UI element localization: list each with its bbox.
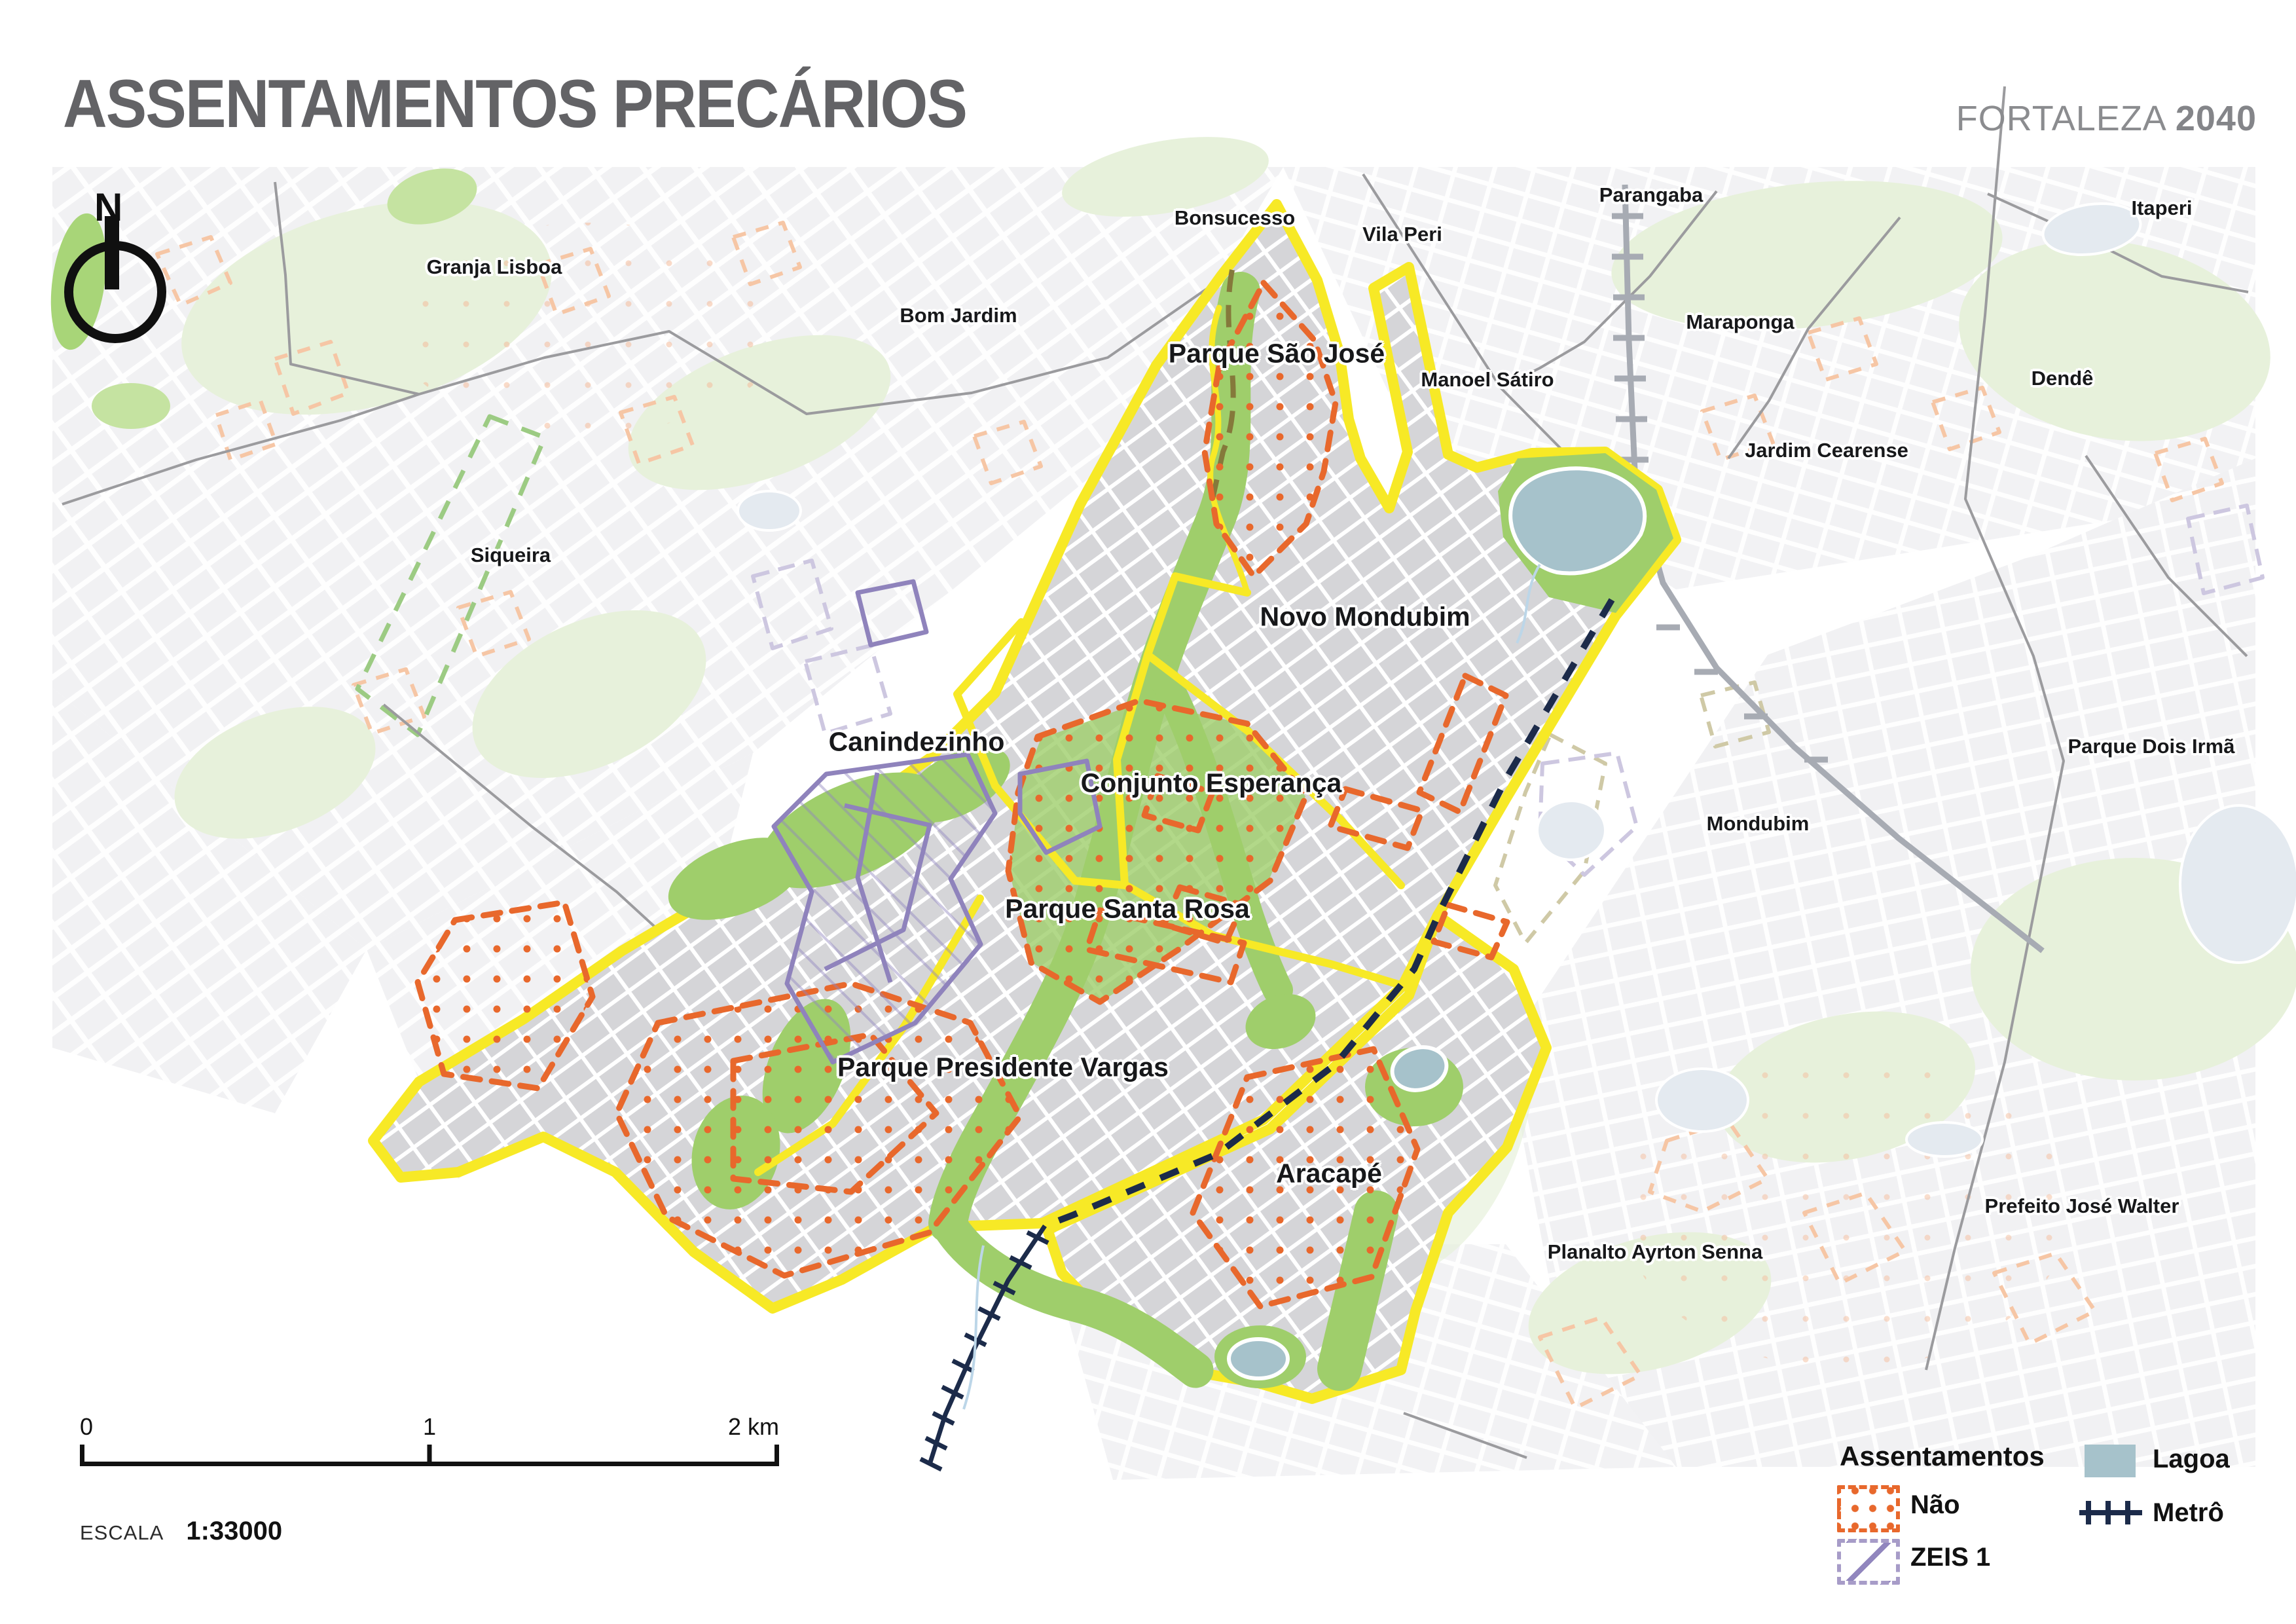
scale-bar-line (80, 1462, 779, 1466)
map-label-vila-peri: Vila Peri (1362, 223, 1442, 246)
page: { "header": { "title": "ASSENTAMENTOS PR… (0, 0, 2296, 1624)
legend-label-lagoa: Lagoa (2153, 1445, 2230, 1474)
map-label-granja-lisboa: Granja Lisboa (427, 255, 562, 279)
map-label-canindezinho: Canindezinho (829, 727, 1005, 758)
map-label-dend-: Dendê (2032, 367, 2094, 390)
scale-tick-label: 1 (423, 1413, 436, 1441)
map-label-prefeito-jos-walter: Prefeito José Walter (1985, 1194, 2179, 1218)
map-label-parque-s-o-jos-: Parque São José (1169, 339, 1385, 369)
page-title: ASSENTAMENTOS PRECÁRIOS (63, 65, 966, 143)
map-label-mondubim: Mondubim (1707, 812, 1810, 836)
legend-swatch-nao-icon (1837, 1485, 1900, 1532)
legend-swatch-zeis1-icon (1837, 1539, 1900, 1585)
north-needle-icon (105, 216, 119, 289)
legend-heading: Assentamentos (1840, 1441, 2045, 1472)
pale-dots-patch (393, 223, 786, 432)
map-label-bom-jardim: Bom Jardim (900, 304, 1017, 327)
map-label-manoel-s-tiro: Manoel Sátiro (1421, 368, 1554, 392)
legend-label-zeis1: ZEIS 1 (1910, 1543, 1990, 1572)
map-label-siqueira: Siqueira (471, 544, 551, 567)
map-label-bonsucesso: Bonsucesso (1175, 206, 1295, 230)
escala-label: ESCALA (80, 1521, 164, 1544)
map-canvas (0, 0, 2296, 1624)
legend-label-nao: Não (1910, 1490, 1960, 1520)
brand-name: FORTALEZA (1956, 99, 2165, 138)
brand-year: 2040 (2176, 99, 2257, 138)
map-label-parque-presidente-vargas: Parque Presidente Vargas (837, 1052, 1169, 1083)
legend-swatch-metro-icon (2079, 1498, 2142, 1527)
map-label-parque-dois-irm-: Parque Dois Irmã (2068, 735, 2235, 758)
map-label-parque-santa-rosa: Parque Santa Rosa (1005, 894, 1250, 925)
north-arrow: N (60, 185, 172, 348)
escala-value: 1:33000 (186, 1517, 282, 1545)
legend: Assentamentos Não ZEIS 1 Lagoa Metrô (1831, 1435, 2276, 1606)
map-label-itaperi: Itaperi (2131, 196, 2192, 220)
legend-label-metro: Metrô (2153, 1498, 2224, 1528)
map-label-maraponga: Maraponga (1686, 310, 1794, 334)
map-label-novo-mondubim: Novo Mondubim (1260, 602, 1470, 633)
scale-numbers: 0 1 2 km (80, 1413, 779, 1442)
lagoa-south (1229, 1339, 1288, 1378)
map-label-planalto-ayrton-senna: Planalto Ayrton Senna (1548, 1240, 1762, 1264)
brand: FORTALEZA 2040 (1956, 98, 2257, 139)
scale-ratio: ESCALA1:33000 (80, 1517, 282, 1546)
map-label-parangaba: Parangaba (1599, 183, 1704, 207)
map-label-conjunto-esperan-a: Conjunto Esperança (1081, 768, 1342, 799)
scale-tick-label: 0 (80, 1413, 93, 1441)
map-label-aracap-: Aracapé (1276, 1158, 1382, 1189)
map-label-jardim-cearense: Jardim Cearense (1745, 439, 1908, 462)
scale-bar: 0 1 2 km ESCALA1:33000 (80, 1413, 779, 1557)
scale-tick-label: 2 km (728, 1413, 779, 1441)
legend-swatch-lagoa-icon (2085, 1445, 2136, 1477)
